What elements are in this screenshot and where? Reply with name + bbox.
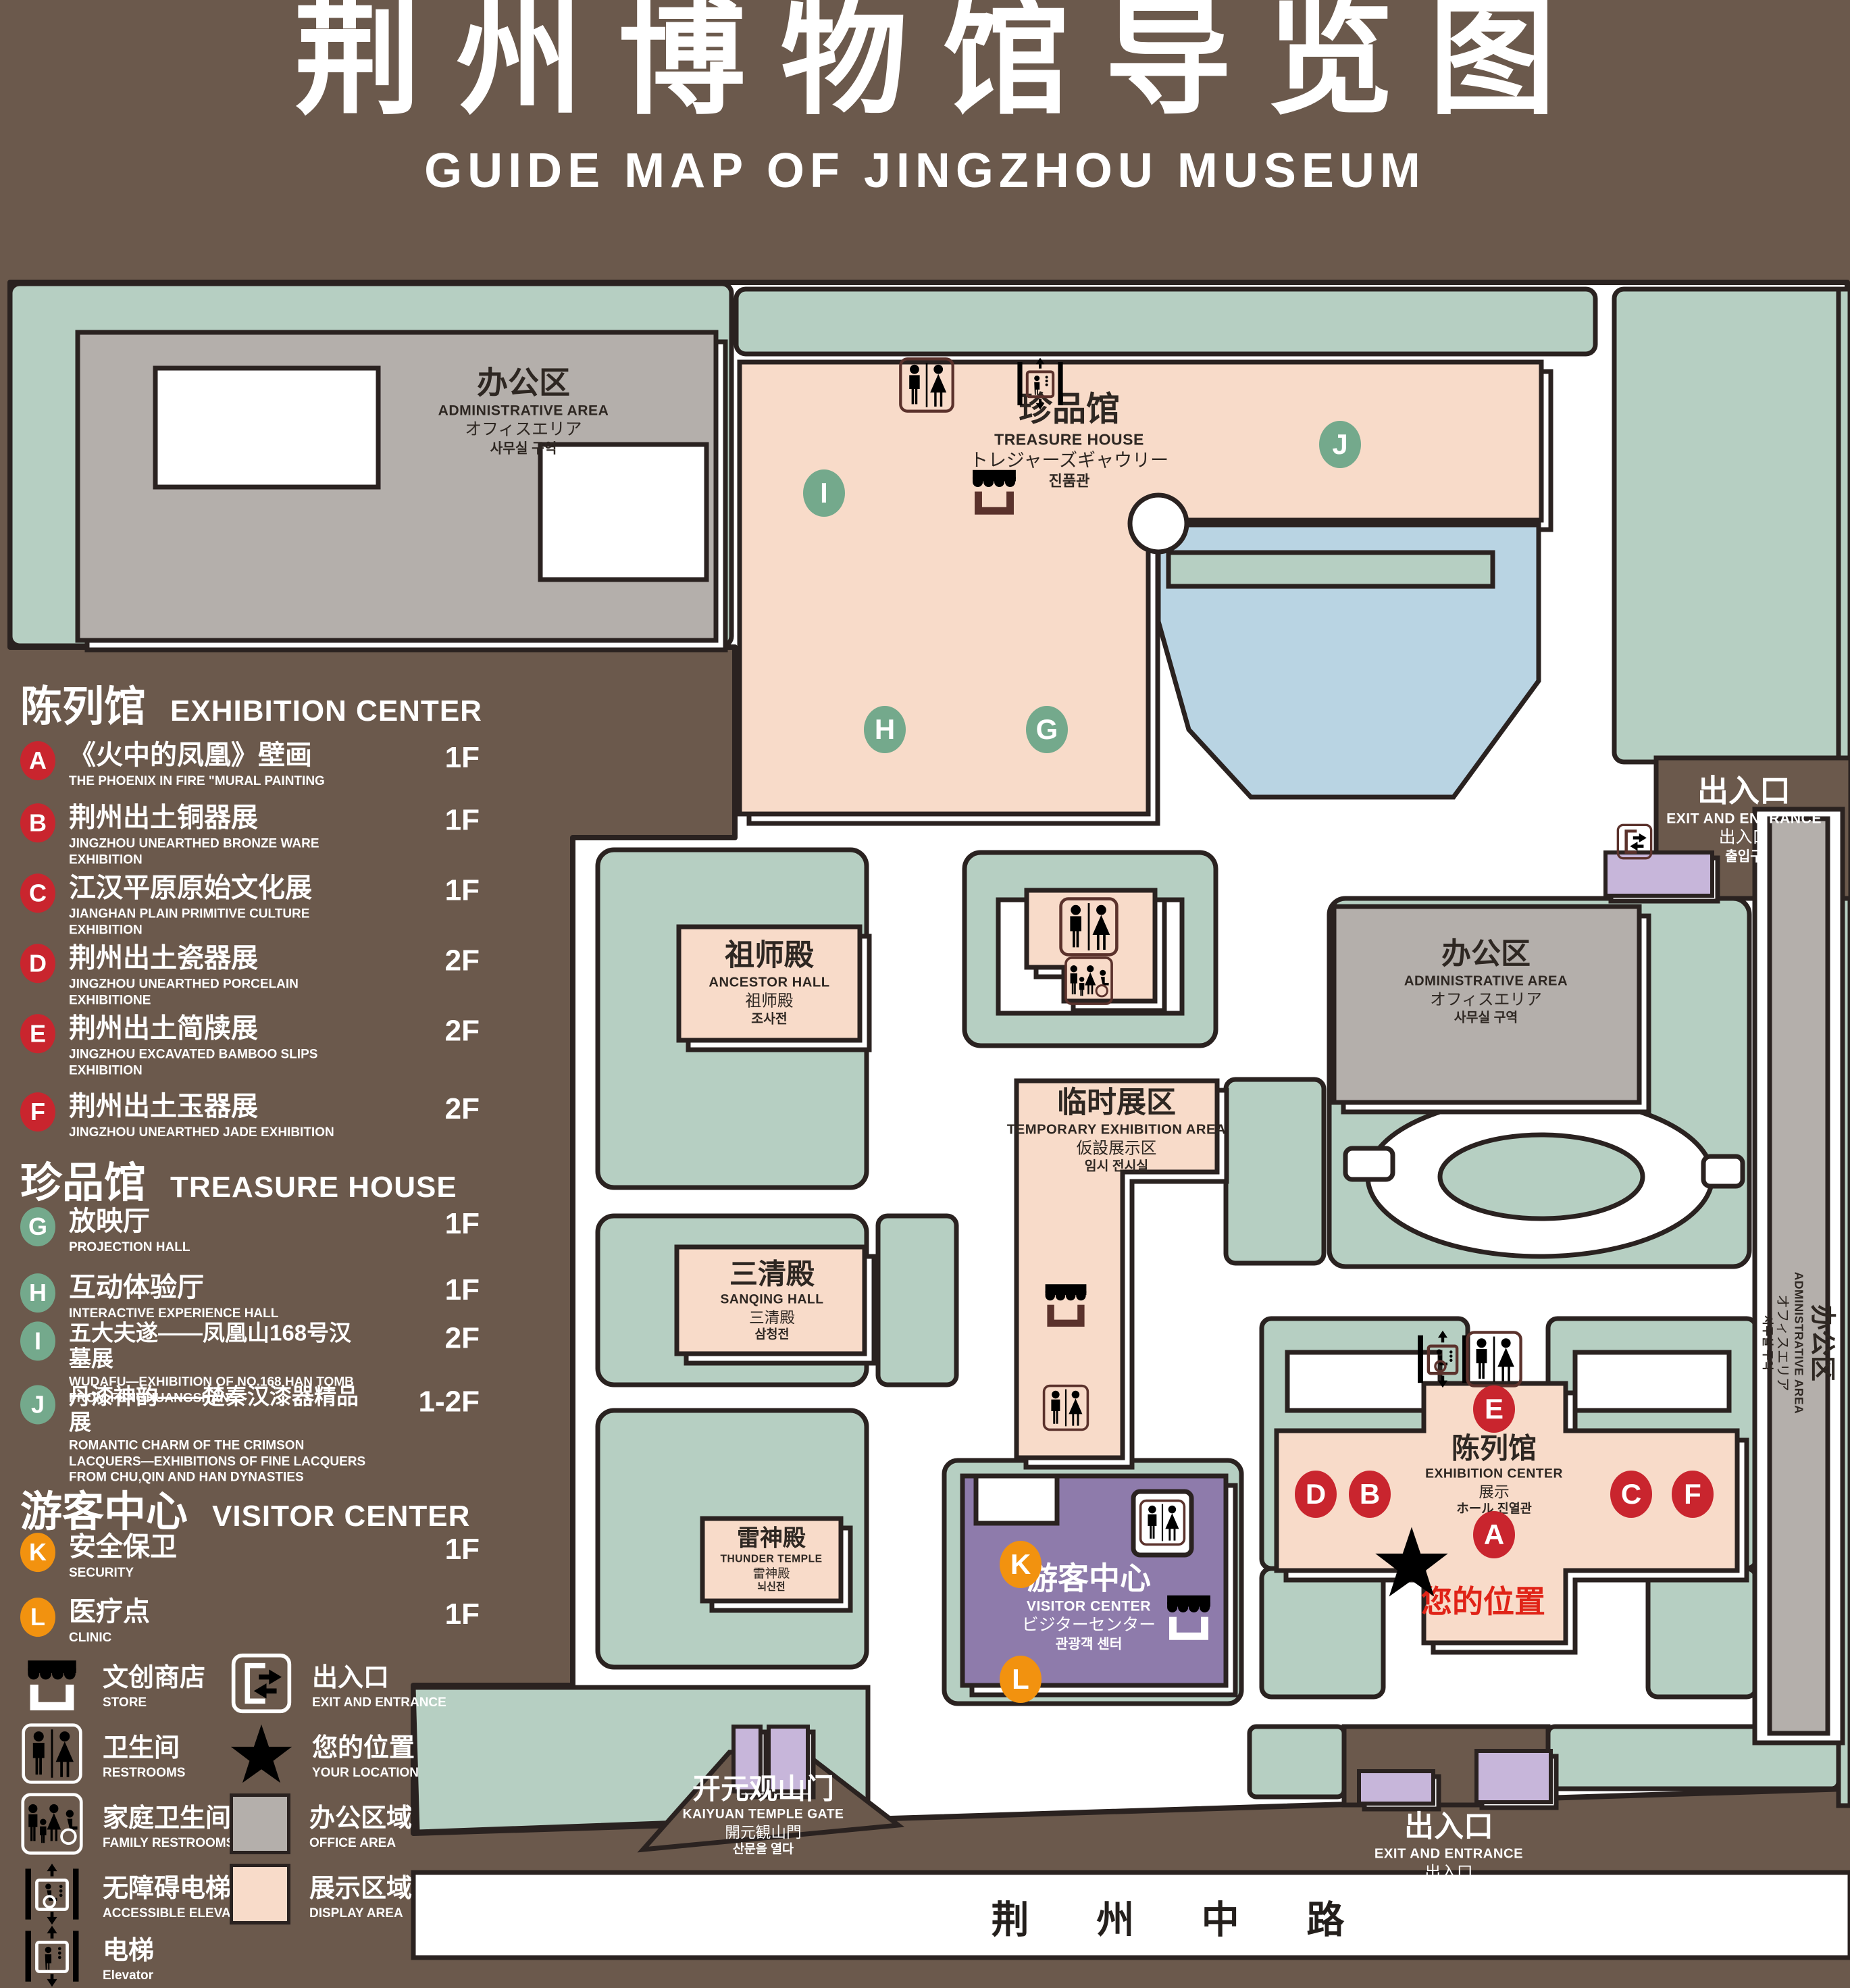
marker-A: A	[1473, 1511, 1515, 1558]
exit-icon	[230, 1652, 293, 1715]
label-sanqing-hall: 三清殿SANQING HALL 三清殿삼청전	[721, 1256, 824, 1342]
exit-icon	[1616, 823, 1653, 861]
legend-symbol-store: 文创商店STORE	[20, 1652, 205, 1715]
legend-section-exhibition-center: 陈列馆EXHIBITION CENTER	[20, 672, 482, 733]
courtyard-temp-east	[1226, 1079, 1324, 1263]
display-area-swatch	[230, 1864, 290, 1925]
legend-symbol-family-restrooms: 家庭卫生间FAMILY RESTROOMS	[20, 1792, 234, 1856]
legend: 陈列馆EXHIBITION CENTER A 《火中的凤凰》壁画THE PHOE…	[0, 0, 486, 1978]
courtyard-ne	[1614, 289, 1847, 762]
legend-section-treasure-house: 珍品馆TREASURE HOUSE	[20, 1148, 457, 1209]
marker-G: G	[20, 1207, 55, 1246]
legend-item-J: J 丹漆神韵——楚秦汉漆器精品展ROMANTIC CHARM OF THE CR…	[20, 1383, 480, 1485]
label-exit-south: 出入口EXIT AND ENTRANCE 出入口출입구	[1374, 1808, 1523, 1898]
store-icon	[1160, 1587, 1217, 1644]
store-icon	[966, 462, 1023, 519]
road-name: 荆 州 中 路	[992, 1890, 1373, 1945]
marker-D: D	[20, 944, 55, 983]
label-exit-east: 出入口EXIT AND ENTRANCE 出入口출입구	[1666, 771, 1822, 865]
your-location-star-icon	[230, 1722, 293, 1785]
marker-H: H	[20, 1273, 55, 1312]
marker-I: I	[803, 469, 845, 517]
legend-item-B: B 荆州出土铜器展JINGZHOU UNEARTHED BRONZE WARE …	[20, 802, 480, 868]
courtyard-top-strip	[736, 289, 1595, 354]
family-restroom-icon	[1064, 956, 1114, 1006]
legend-symbol-restrooms: 卫生间RESTROOMS	[20, 1722, 185, 1785]
courtyard-mid-small	[878, 1216, 956, 1385]
marker-C: C	[20, 873, 55, 913]
marker-F: F	[1672, 1471, 1714, 1518]
legend-item-F: F 荆州出土玉器展JINGZHOU UNEARTHED JADE EXHIBIT…	[20, 1091, 480, 1141]
restroom-icon	[1138, 1498, 1187, 1547]
label-exhibition-center: 陈列馆EXHIBITION CENTER 展示ホール 진열관	[1425, 1431, 1563, 1517]
label-thunder-temple: 雷神殿THUNDER TEMPLE 雷神殿뇌신전	[720, 1525, 822, 1594]
park-path-west	[1345, 1148, 1393, 1179]
marker-J: J	[20, 1385, 55, 1424]
marker-B: B	[20, 803, 55, 842]
legend-item-A: A 《火中的凤凰》壁画THE PHOENIX IN FIRE "MURAL PA…	[20, 740, 480, 790]
legend-symbol-display-area: 展示区域DISPLAY AREA	[230, 1864, 412, 1925]
store-icon	[20, 1652, 84, 1715]
restroom-icon	[20, 1722, 84, 1785]
marker-A: A	[20, 741, 55, 780]
label-ancestor-hall: 祖师殿ANCESTOR HALL 祖师殿조사전	[709, 937, 829, 1027]
elevator-icon	[20, 1925, 84, 1988]
marker-K: K	[20, 1533, 55, 1572]
office-area-swatch	[230, 1793, 290, 1854]
courtyard-exh-right-inner	[1575, 1352, 1729, 1410]
marker-L: L	[1000, 1656, 1042, 1703]
marker-I: I	[20, 1321, 55, 1360]
restroom-icon	[898, 356, 956, 414]
legend-item-K: K 安全保卫SECURITY 1F	[20, 1531, 480, 1581]
accessible-elevator-icon	[1413, 1329, 1472, 1389]
legend-section-visitor-center: 游客中心VISITOR CENTER	[20, 1477, 470, 1538]
label-visitor-center: 游客中心VISITOR CENTER ビジターセンター관광객 센터	[1022, 1559, 1156, 1653]
legend-item-E: E 荆州出土简牍展JINGZHOU EXCAVATED BAMBOO SLIPS…	[20, 1013, 480, 1079]
restroom-icon	[1042, 1383, 1090, 1432]
legend-symbol-exit: 出入口EXIT AND ENTRANCE	[230, 1652, 446, 1715]
legend-item-L: L 医疗点CLINIC 1F	[20, 1596, 480, 1646]
restroom-icon	[1058, 896, 1120, 958]
restroom-icon	[1464, 1329, 1524, 1389]
legend-item-D: D 荆州出土瓷器展JINGZHOU UNEARTHED PORCELAIN EX…	[20, 942, 480, 1009]
label-temporary-exhibition: 临时展区TEMPORARY EXHIBITION AREA 仮設展示区임시 전시…	[1007, 1084, 1226, 1174]
marker-D: D	[1295, 1471, 1337, 1518]
legend-symbol-accessible-elevator: 无障碍电梯ACCESSIBLE ELEVATOR	[20, 1862, 257, 1926]
elevator-icon	[1013, 357, 1067, 411]
marker-F: F	[20, 1092, 55, 1131]
label-admin-southeast: 办公区ADMINISTRATIVE AREA オフィスエリア사무실 구역	[1760, 1272, 1838, 1414]
marker-B: B	[1349, 1471, 1391, 1518]
legend-item-G: G 放映厅PROJECTION HALL 1F	[20, 1206, 480, 1256]
marker-J: J	[1319, 421, 1361, 468]
park-path-east	[1703, 1156, 1743, 1186]
store-icon	[1039, 1277, 1093, 1331]
marker-E: E	[20, 1014, 55, 1053]
marker-E: E	[1473, 1385, 1515, 1433]
legend-item-H: H 互动体验厅INTERACTIVE EXPERIENCE HALL 1F	[20, 1272, 480, 1322]
park-island	[1440, 1135, 1643, 1219]
legend-symbol-elevator: 电梯Elevator	[20, 1925, 154, 1988]
courtyard-exh-right-lower	[1648, 1569, 1756, 1697]
marker-K: K	[1000, 1541, 1042, 1588]
family-restroom-icon	[20, 1792, 84, 1856]
label-admin-east: 办公区ADMINISTRATIVE AREA オフィスエリア사무실 구역	[1404, 936, 1568, 1025]
label-kaiyuan-gate: 开元观山门KAIYUAN TEMPLE GATE 開元観山門산문을 열다	[683, 1771, 844, 1857]
accessible-elevator-icon	[20, 1862, 84, 1926]
legend-symbol-your-location: 您的位置YOUR LOCATION	[230, 1722, 419, 1785]
marker-H: H	[864, 706, 906, 753]
legend-symbol-office-area: 办公区域OFFICE AREA	[230, 1793, 412, 1854]
marker-G: G	[1026, 706, 1068, 753]
courtyard-exh-left-lower	[1262, 1569, 1383, 1697]
marker-C: C	[1610, 1471, 1652, 1518]
courtyard-sgate-west	[1250, 1727, 1344, 1797]
your-location-star-icon	[1374, 1524, 1449, 1600]
legend-item-C: C 江汉平原原始文化展JIANGHAN PLAIN PRIMITIVE CULT…	[20, 872, 480, 938]
marker-L: L	[20, 1598, 55, 1637]
